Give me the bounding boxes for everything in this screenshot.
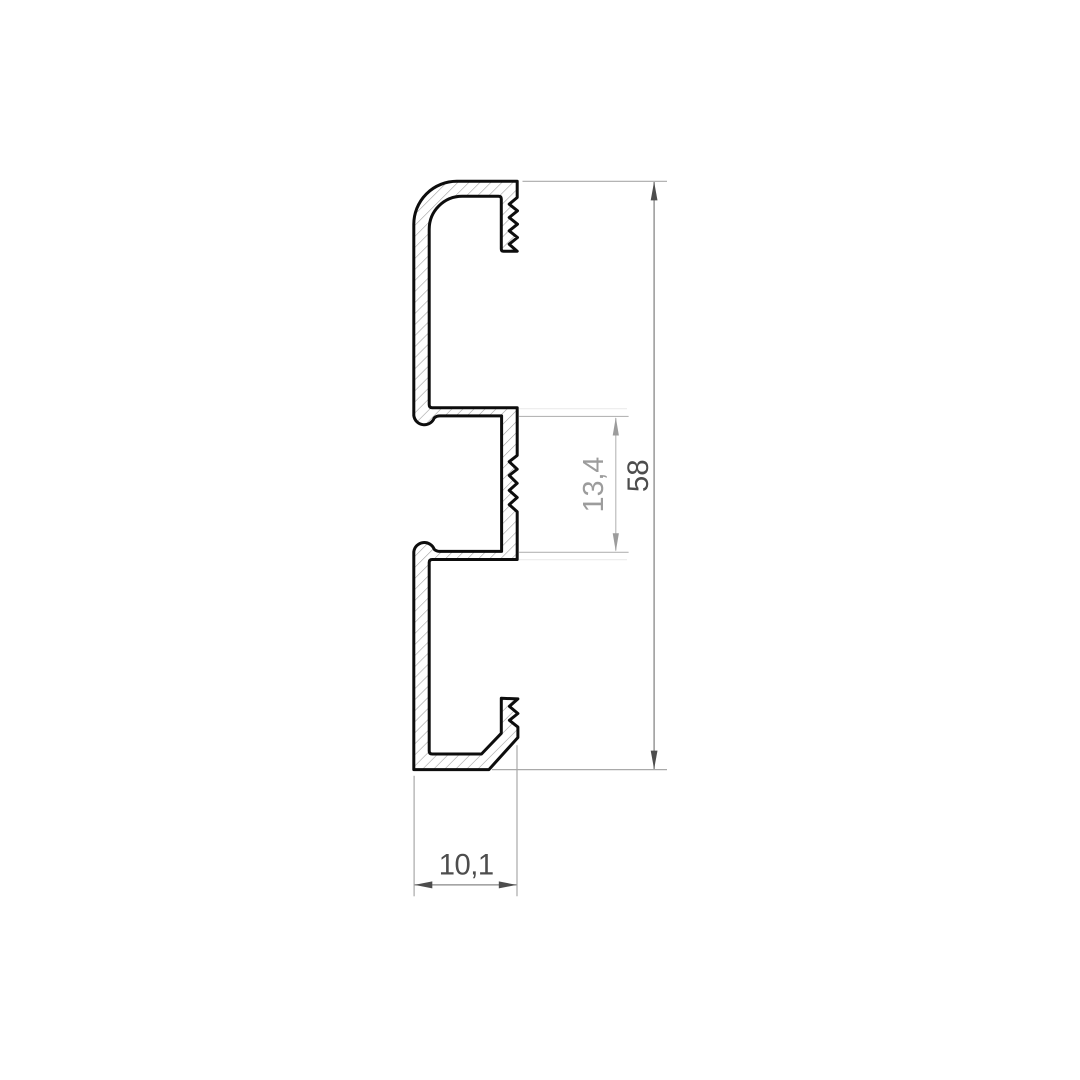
svg-text:10,1: 10,1 bbox=[439, 850, 494, 882]
svg-text:13,4: 13,4 bbox=[578, 457, 610, 513]
svg-text:58: 58 bbox=[622, 459, 655, 492]
